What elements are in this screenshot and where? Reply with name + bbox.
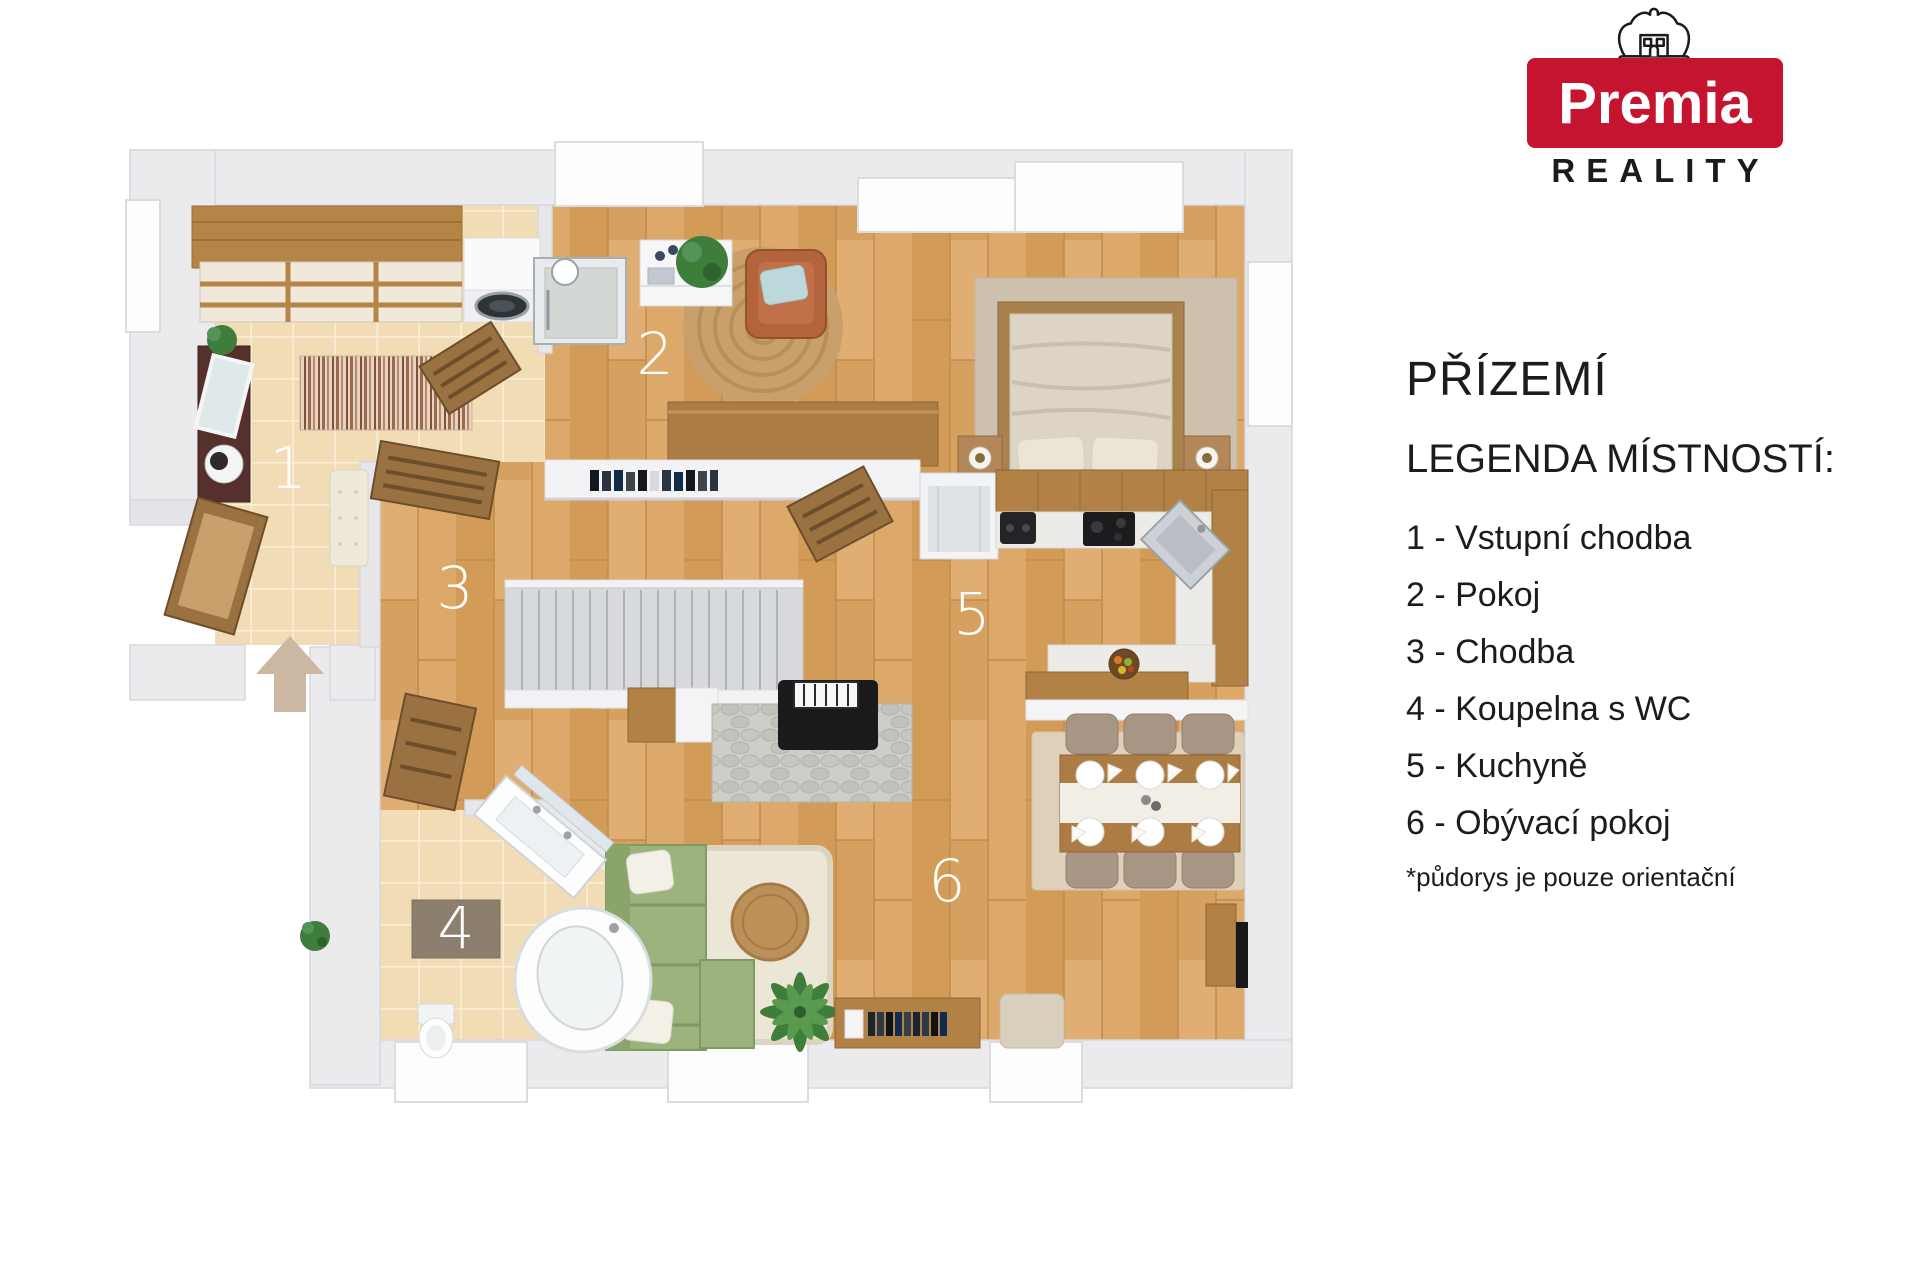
ottoman — [1000, 994, 1064, 1048]
room-label-6: 6 — [929, 847, 966, 915]
room-label-2: 2 — [637, 320, 674, 388]
plate — [1136, 761, 1164, 789]
dresser-plant — [676, 236, 728, 288]
coffee-machine — [1000, 512, 1036, 544]
dining-chair — [1182, 714, 1234, 754]
window-top-2 — [858, 178, 1026, 232]
mirror — [552, 259, 578, 285]
armchair — [746, 250, 826, 338]
legend-item-5: 5 - Kuchyně — [1406, 746, 1886, 803]
floor-title: PŘÍZEMÍ — [1406, 352, 1886, 407]
dining-chair — [1124, 848, 1176, 888]
legend-list: 1 - Vstupní chodba 2 - Pokoj 3 - Chodba … — [1406, 518, 1886, 860]
dining-area — [1032, 714, 1244, 890]
shower — [534, 258, 626, 344]
toilet — [418, 1004, 454, 1058]
window-bottom-3 — [990, 1042, 1082, 1102]
console-with-mirror — [196, 325, 253, 502]
room-label-1: 1 — [270, 434, 307, 502]
bench — [330, 470, 368, 566]
coffee-table — [732, 884, 808, 960]
bathroom-plant — [300, 921, 330, 951]
dining-chair — [1066, 848, 1118, 888]
fruit-bowl — [1109, 649, 1139, 679]
tray — [648, 268, 674, 284]
dining-chair — [1124, 714, 1176, 754]
bedroom-area — [958, 278, 1237, 480]
window-right — [1248, 262, 1292, 426]
palm-plant — [760, 972, 840, 1052]
fridge — [920, 473, 998, 559]
legend-item-2: 2 - Pokoj — [1406, 575, 1886, 632]
hall-sideboard — [628, 688, 718, 742]
legend-item-4: 4 - Koupelna s WC — [1406, 689, 1886, 746]
legend-item-6: 6 - Obývací pokoj — [1406, 803, 1886, 860]
window-top-1 — [555, 142, 703, 206]
wardrobe — [192, 206, 462, 322]
brand-tagline: REALITY — [1527, 152, 1783, 190]
sofa-pillow — [625, 849, 674, 895]
brand-box: Premia — [1527, 58, 1783, 148]
window-bottom-1 — [395, 1042, 527, 1102]
desk — [668, 402, 938, 466]
bathtub — [515, 908, 651, 1052]
kitchen-peninsula — [1026, 645, 1248, 720]
dresser — [640, 236, 732, 306]
plate — [1076, 761, 1104, 789]
tv-sideboard — [835, 998, 980, 1048]
cooktop — [1083, 512, 1135, 546]
washing-machine — [464, 238, 540, 322]
room-label-3: 3 — [437, 554, 474, 622]
legend-item-1: 1 - Vstupní chodba — [1406, 518, 1886, 575]
legend-heading: LEGENDA MÍSTNOSTÍ: — [1406, 437, 1886, 482]
room-label-4: 4 — [438, 894, 475, 962]
plate — [1196, 761, 1224, 789]
armchair-pillow — [759, 264, 808, 305]
dining-chair — [1182, 848, 1234, 888]
room-label-5: 5 — [954, 580, 991, 648]
dining-chair — [1066, 714, 1118, 754]
books-row — [590, 470, 718, 491]
window-left — [126, 200, 160, 332]
legend-footnote: *půdorys je pouze orientační — [1406, 862, 1886, 893]
brand-name: Premia — [1558, 70, 1751, 137]
window-top-3 — [1015, 162, 1183, 232]
legend-item-3: 3 - Chodba — [1406, 632, 1886, 689]
legend-panel: PŘÍZEMÍ LEGENDA MÍSTNOSTÍ: 1 - Vstupní c… — [1406, 352, 1886, 893]
real-estate-floorplan-page: 1 2 3 4 5 6 Premia REALITY PŘÍZEMÍ LEGE — [0, 0, 1920, 1280]
